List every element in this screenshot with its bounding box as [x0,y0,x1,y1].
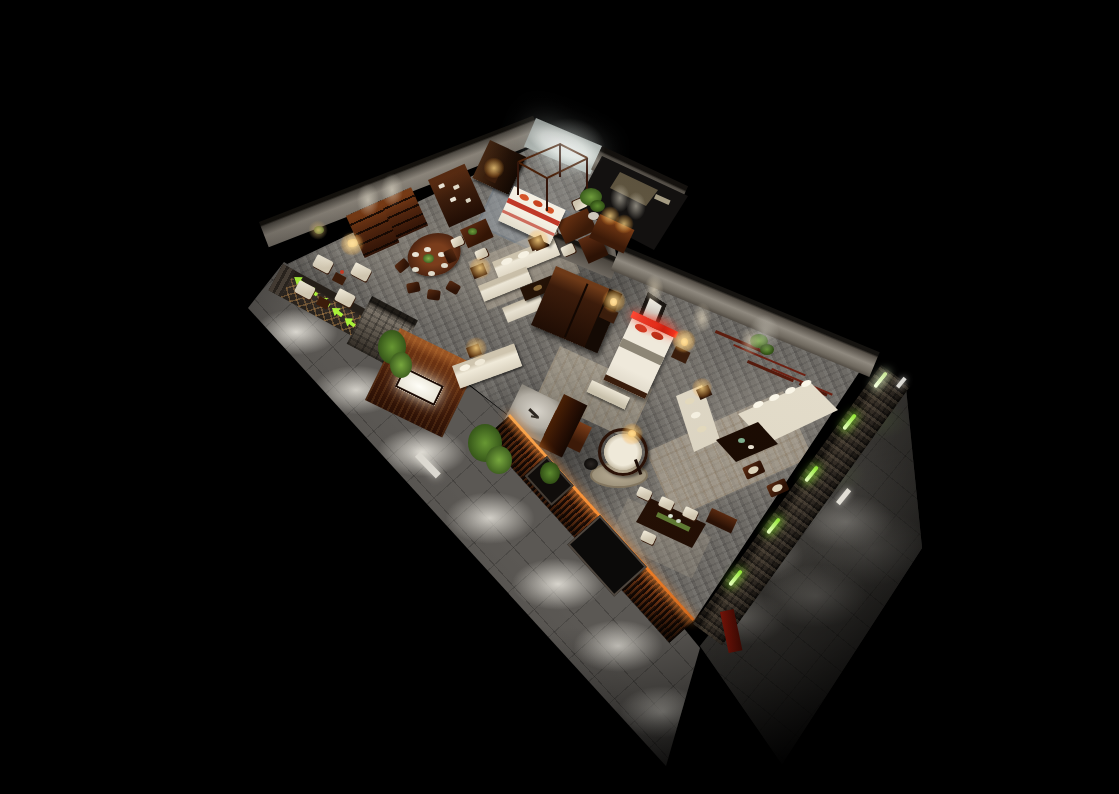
scene-vignette [0,0,1119,794]
showroom-night-render [0,0,1119,794]
